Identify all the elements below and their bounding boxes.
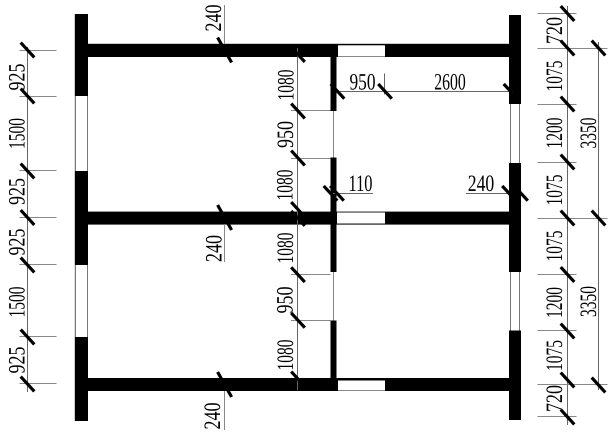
svg-text:925: 925 [5, 64, 31, 91]
svg-text:110: 110 [349, 171, 373, 197]
svg-text:240: 240 [200, 403, 226, 430]
svg-text:1080: 1080 [273, 340, 299, 371]
svg-text:720: 720 [542, 385, 568, 412]
svg-text:950: 950 [273, 121, 299, 148]
svg-text:1200: 1200 [542, 287, 568, 318]
svg-text:1075: 1075 [542, 175, 568, 206]
svg-text:925: 925 [5, 178, 31, 205]
svg-text:720: 720 [542, 17, 568, 44]
svg-text:3350: 3350 [576, 118, 602, 149]
svg-text:3350: 3350 [576, 286, 602, 317]
svg-text:240: 240 [201, 5, 227, 32]
svg-text:1500: 1500 [5, 287, 31, 318]
svg-text:1500: 1500 [5, 118, 31, 149]
svg-text:1080: 1080 [274, 70, 300, 101]
svg-text:1080: 1080 [273, 170, 299, 201]
svg-text:925: 925 [5, 229, 31, 256]
svg-text:1200: 1200 [542, 118, 568, 149]
svg-text:950: 950 [273, 287, 299, 314]
svg-text:1075: 1075 [542, 231, 568, 262]
svg-text:2600: 2600 [434, 69, 466, 95]
svg-text:950: 950 [350, 69, 376, 95]
svg-text:1080: 1080 [273, 233, 299, 264]
svg-text:240: 240 [468, 171, 495, 197]
svg-text:1075: 1075 [542, 340, 568, 371]
svg-text:925: 925 [5, 347, 31, 374]
svg-text:1075: 1075 [542, 61, 568, 92]
svg-text:240: 240 [202, 235, 228, 262]
